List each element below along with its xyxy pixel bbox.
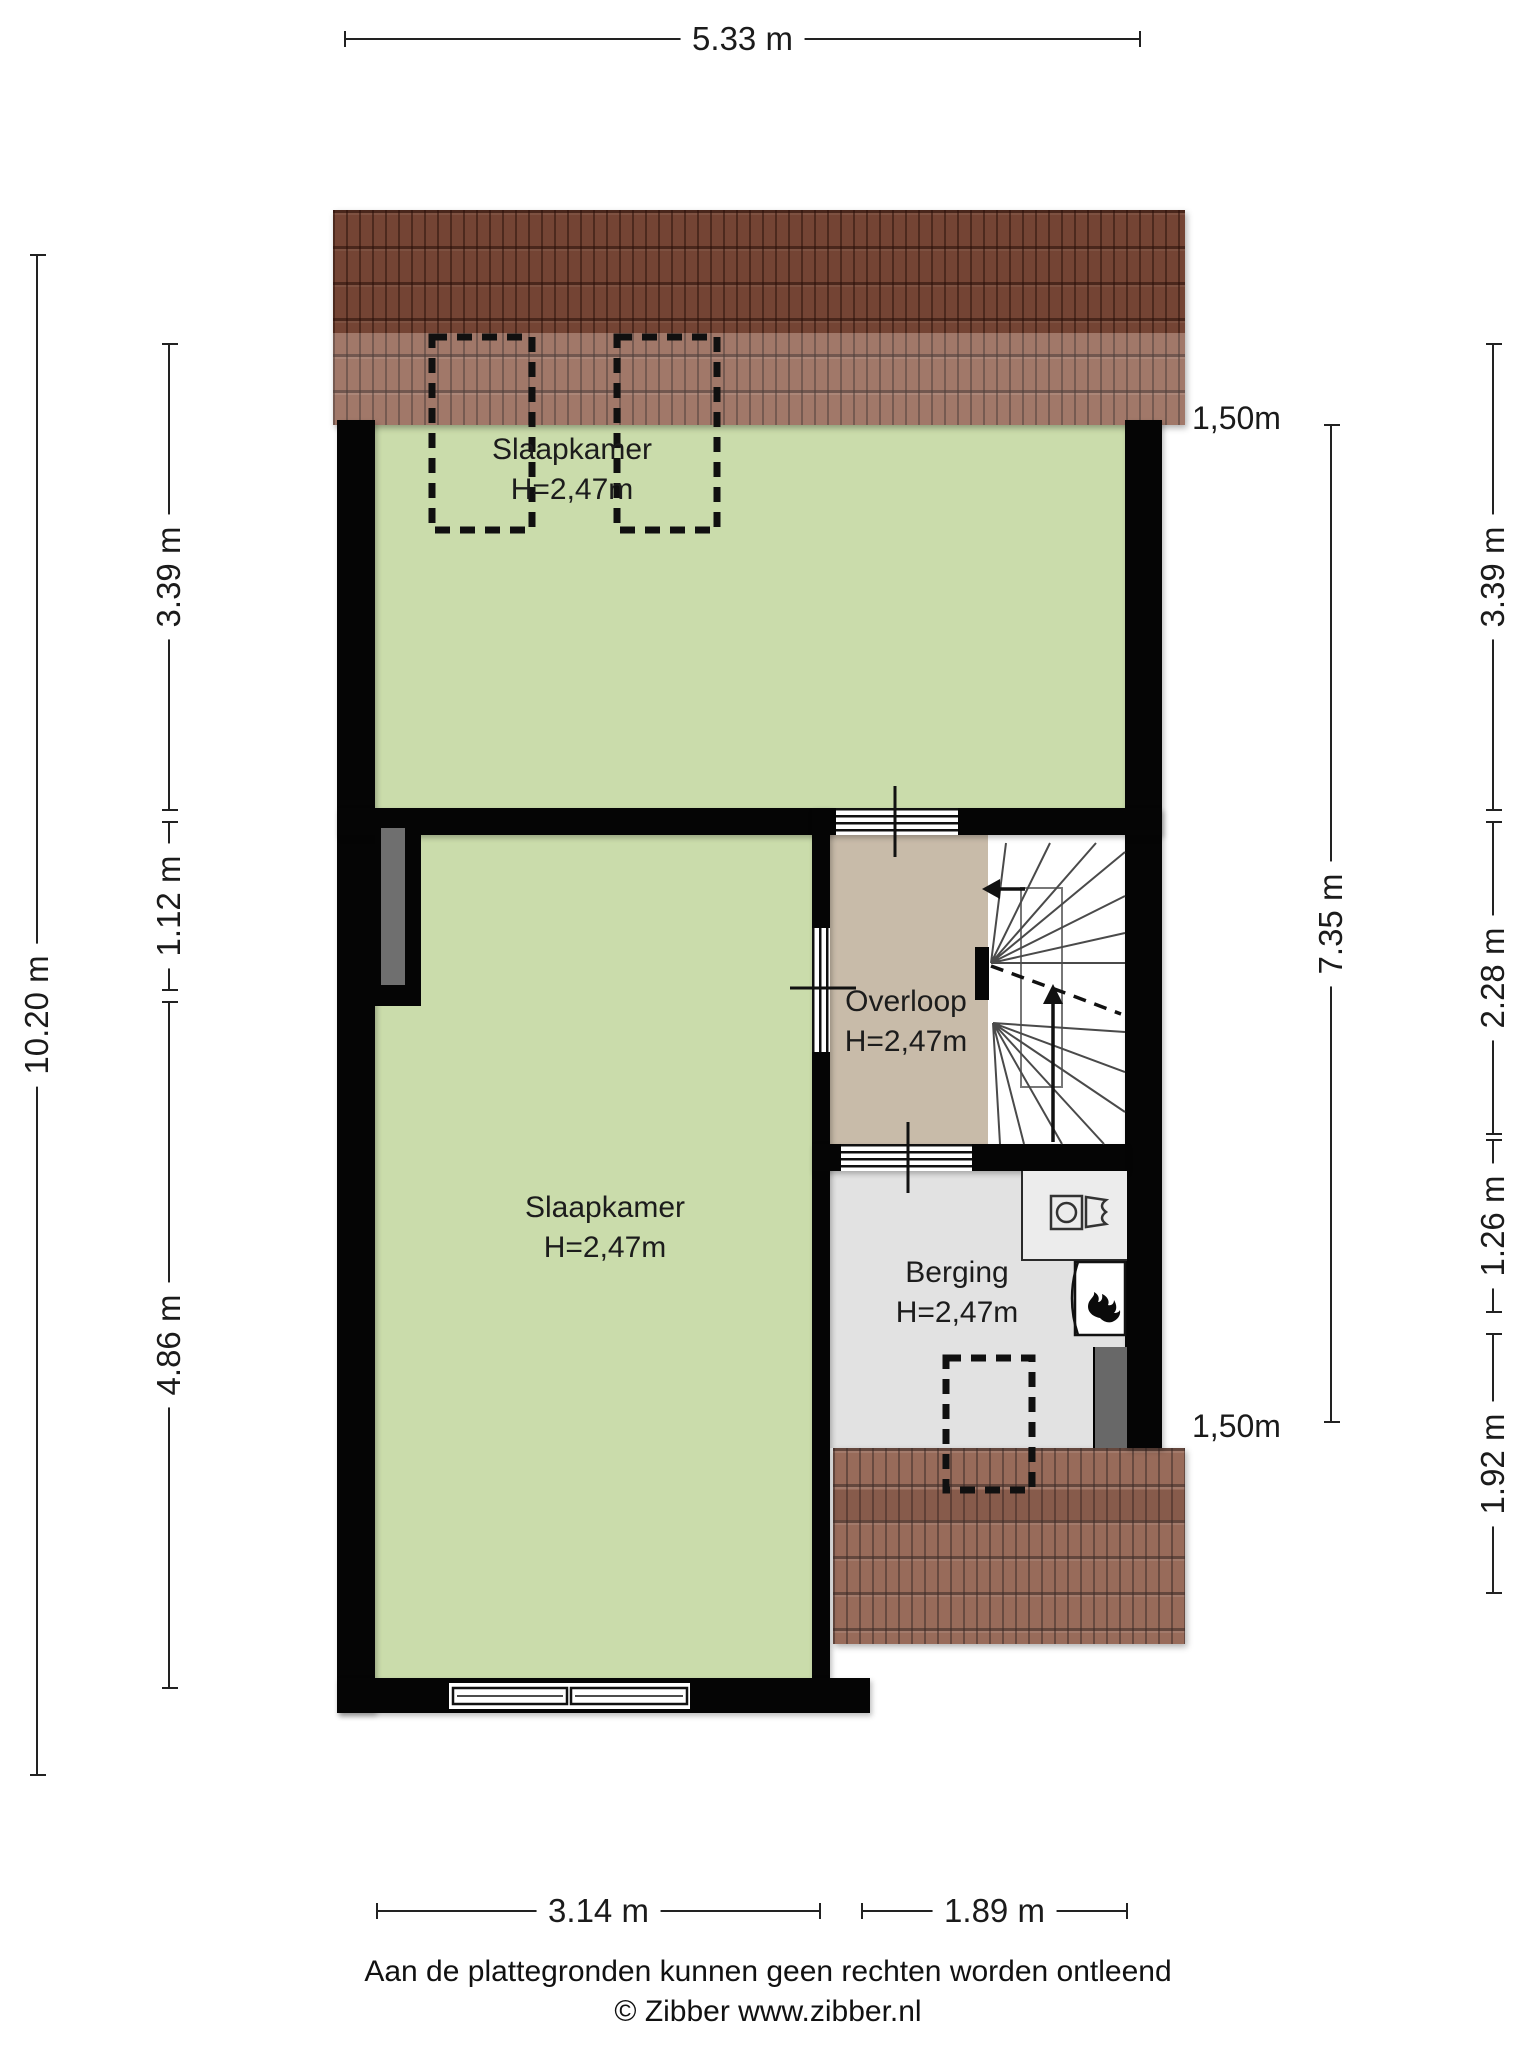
label-landing: Overloop H=2,47m (845, 982, 968, 1062)
label-bedroom-top: Slaapkamer H=2,47m (492, 430, 652, 510)
dim-left-total: 10.20 m (36, 255, 38, 1775)
dim-top-width: 5.33 m (345, 38, 1140, 40)
plan-vector-overlay (0, 0, 1536, 2048)
room-height: H=2,47m (492, 470, 652, 510)
dim-bottom-seg-1-label: 3.14 m (536, 1892, 661, 1930)
label-storage: Berging H=2,47m (896, 1253, 1019, 1333)
dim-right-seg-3: 1.26 m (1492, 1140, 1494, 1312)
stairs-arrow-left (982, 879, 1000, 899)
dim-right-inner-total-label: 7.35 m (1312, 861, 1350, 986)
label-bedroom-left: Slaapkamer H=2,47m (525, 1188, 685, 1268)
room-height: H=2,47m (525, 1228, 685, 1268)
dim-left-seg-2-label: 1.12 m (150, 844, 188, 969)
footer-copyright: © Zibber www.zibber.nl (0, 1995, 1536, 2029)
dim-right-seg-1-label: 3.39 m (1474, 515, 1512, 640)
washing-machine-icon (1051, 1196, 1082, 1229)
dim-right-seg-3-label: 1.26 m (1474, 1164, 1512, 1289)
boiler (1072, 1262, 1125, 1335)
dim-right-seg-4-label: 1.92 m (1474, 1401, 1512, 1526)
dim-left-seg-3: 4.86 m (168, 1002, 170, 1688)
dim-right-inner-total: 7.35 m (1330, 425, 1332, 1422)
room-height: H=2,47m (845, 1022, 968, 1062)
roof-height-label-top: 1,50m (1192, 400, 1281, 437)
footer-disclaimer: Aan de plattegronden kunnen geen rechten… (0, 1955, 1536, 1989)
staircase (982, 843, 1125, 1144)
room-name: Slaapkamer (492, 430, 652, 470)
dim-left-seg-2: 1.12 m (168, 822, 170, 990)
dim-bottom-seg-2-label: 1.89 m (932, 1892, 1057, 1930)
roof-height-label-bottom: 1,50m (1192, 1408, 1281, 1445)
floorplan-canvas: Slaapkamer H=2,47m Slaapkamer H=2,47m Ov… (0, 0, 1536, 2048)
sink-icon (1086, 1197, 1106, 1227)
dim-left-seg-1-label: 3.39 m (150, 515, 188, 640)
dim-left-seg-1: 3.39 m (168, 344, 170, 810)
dim-right-seg-2-label: 2.28 m (1474, 916, 1512, 1041)
dim-left-seg-3-label: 4.86 m (150, 1283, 188, 1408)
dim-bottom-seg-2: 1.89 m (862, 1910, 1127, 1912)
window-bottom (449, 1683, 690, 1709)
dim-right-seg-1: 3.39 m (1492, 344, 1494, 810)
room-name: Slaapkamer (525, 1188, 685, 1228)
dim-right-seg-4: 1.92 m (1492, 1334, 1494, 1593)
room-name: Overloop (845, 982, 968, 1022)
room-name: Berging (896, 1253, 1019, 1293)
room-height: H=2,47m (896, 1293, 1019, 1333)
dormer-window-dashed-3 (946, 1358, 1032, 1490)
dim-right-seg-2: 2.28 m (1492, 822, 1494, 1134)
dim-left-total-label: 10.20 m (18, 943, 56, 1086)
dim-top-width-label: 5.33 m (680, 20, 805, 58)
dim-bottom-seg-1: 3.14 m (377, 1910, 820, 1912)
stairs-arrow-up (1043, 984, 1063, 1004)
